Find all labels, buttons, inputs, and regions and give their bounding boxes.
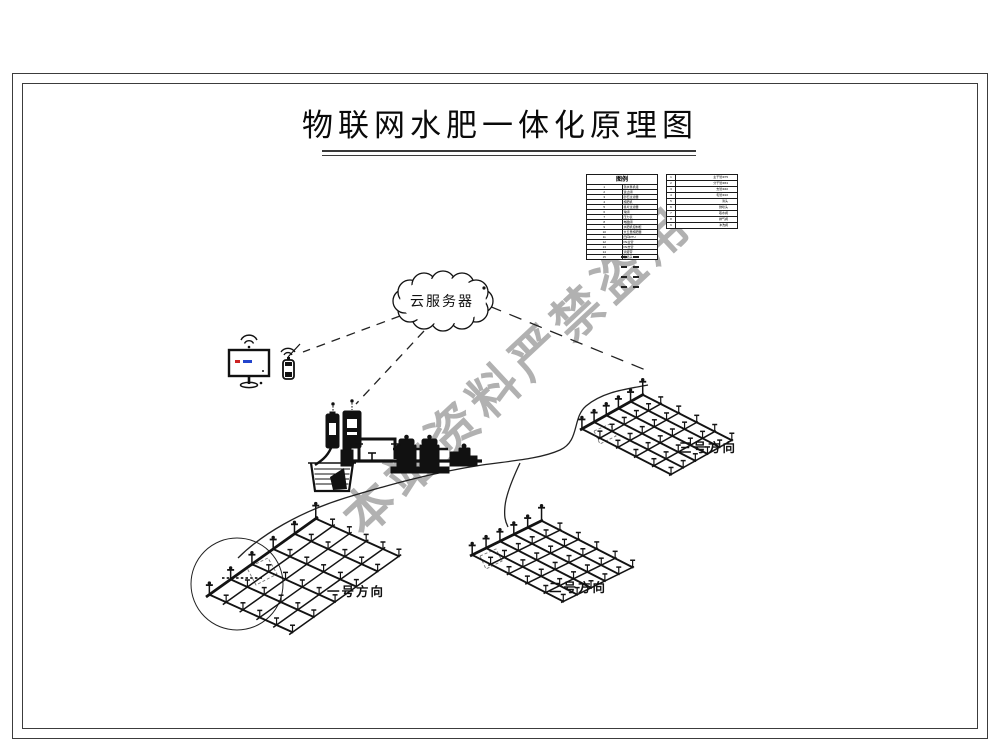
dashed-line-sample: [621, 276, 639, 278]
dashed-line-sample: [621, 266, 639, 268]
field-3-label: 三号方向: [679, 440, 737, 455]
dashed-line-sample: [621, 286, 639, 288]
pipe-branch-to-field2: [505, 463, 520, 527]
rtu-antenna-icon: [351, 400, 353, 402]
cloud-server-label: 云服务器: [410, 294, 474, 310]
legend-row: 9冲洗阀: [667, 223, 738, 229]
rtu-antenna-icon: [332, 403, 334, 405]
legend-row-text: 冲洗阀: [676, 223, 738, 229]
field-2-label: 二号方向: [549, 580, 607, 595]
cloud-dot: [482, 286, 485, 289]
fertigation-unit: [308, 400, 482, 491]
link-cloud-to-fertigation: [356, 331, 424, 404]
dashed-line-sample: [621, 256, 639, 258]
water-basin-icon: [308, 463, 356, 491]
wifi-beam: [288, 344, 300, 357]
wifi-signal-icon: [241, 335, 257, 340]
legend-header: 图例: [587, 175, 658, 185]
mobile-phone-icon: [281, 344, 300, 379]
pc-monitor-icon: [229, 335, 269, 387]
link-cloud-to-phone: [303, 316, 400, 352]
page-title: 物联网水肥一体化原理图: [0, 100, 1000, 145]
drawing-sheet: { "title": "物联网水肥一体化原理图", "watermark": {…: [0, 0, 1000, 750]
legend-table-2: 1主干管Φ752分干管Φ633支管Φ404毛管Φ165滴头6微喷头7取水阀8排气…: [666, 174, 738, 229]
motor-cluster-icon: [450, 444, 477, 466]
pipe-bridge: [359, 439, 395, 461]
irrigation-grids: [206, 378, 734, 635]
screen-red-indicator: [235, 360, 240, 363]
legend-row-number: 15: [587, 255, 623, 260]
link-cloud-to-field3: [489, 306, 648, 371]
title-underline: [322, 150, 696, 156]
field-grid-1: [206, 502, 402, 635]
legend-table: 图例 1潜水泵机组2逆止阀3砂石过滤器4施肥机5叠片过滤器6球阀7压力表8电磁阀…: [586, 174, 658, 260]
filter-tanks-icon: [391, 435, 449, 473]
screen-blue-indicator: [243, 360, 252, 363]
field-1-label: 一号方向: [327, 584, 385, 599]
legend-line-samples: [621, 256, 639, 296]
legend-row-number: 9: [667, 223, 676, 229]
field-grid-3: [578, 378, 734, 476]
